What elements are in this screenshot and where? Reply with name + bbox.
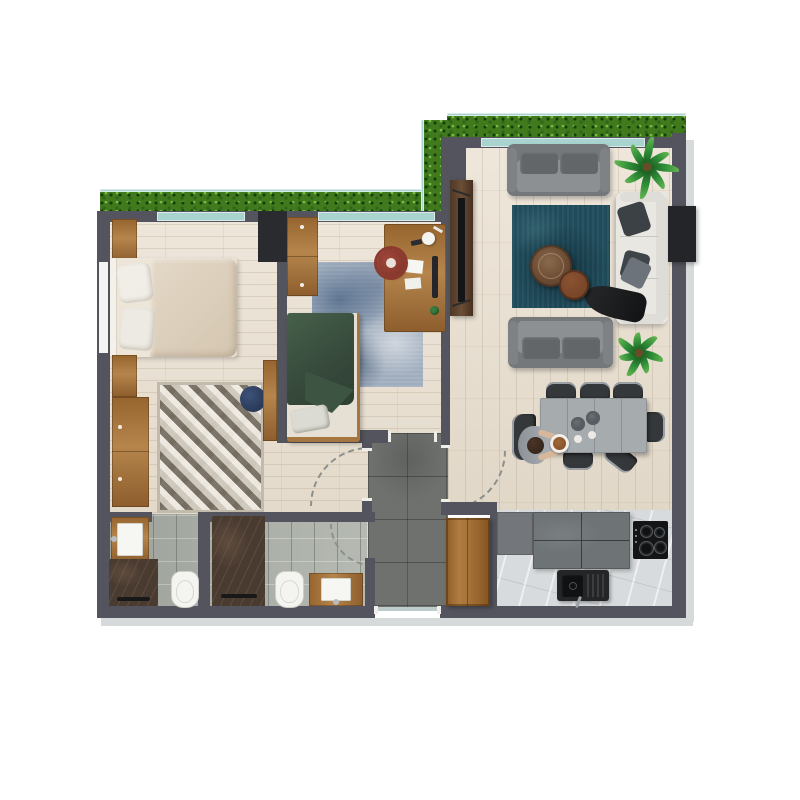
tv [458, 198, 465, 302]
entry-door-hinge-left [374, 606, 378, 614]
bathA-shower-drain [117, 597, 150, 601]
bathB-faucet [333, 599, 339, 605]
hedge-left-wing [100, 192, 447, 212]
desk [384, 224, 446, 332]
bathA-shower [109, 559, 158, 606]
desk-lamp [422, 232, 435, 245]
wall-bathB-right-top [365, 512, 375, 522]
desk-lamp-arm [433, 226, 443, 234]
sofa-gray-bottom [508, 317, 613, 368]
kitchen-counter [533, 512, 630, 569]
bathA-toilet [171, 571, 199, 608]
desk-paper-1 [405, 259, 423, 274]
entry-door-hinge-right [437, 606, 441, 614]
wall-bottom-left [97, 606, 375, 618]
bed-pillow-2 [118, 307, 156, 352]
bed-green-pillow [289, 404, 331, 434]
hall-door-post-bottom [362, 498, 372, 501]
bedroom2-door-post-left [388, 431, 391, 442]
wall-bottom-right [440, 606, 686, 618]
sink-drain-hole [569, 582, 577, 590]
closet-strip [263, 360, 277, 441]
small-plate-1 [574, 435, 582, 443]
bed-single-green [287, 313, 360, 442]
floor-plan [0, 0, 800, 800]
nightstand-bottom [112, 355, 137, 397]
living-door-post-bottom [441, 499, 450, 502]
bathA-faucet [111, 536, 117, 542]
desk-phone [411, 239, 423, 246]
bowl-2 [586, 411, 600, 425]
sink-drainboard [587, 574, 605, 597]
sofa-pillow-dark-1 [616, 200, 652, 237]
hall-door-post-top [362, 448, 372, 451]
kitchen-cabinet [497, 512, 533, 555]
induction-cooktop [633, 521, 668, 559]
desk-paper-2 [405, 277, 422, 289]
bed-double [110, 258, 237, 357]
dining-chair-4 [563, 452, 593, 470]
sofa-white [616, 192, 668, 324]
seated-person [516, 424, 562, 466]
bathB-toilet [275, 571, 304, 608]
bathA-washbasin-cabinet [111, 517, 149, 562]
shadow-bottom [101, 618, 693, 626]
kitchen-sink [557, 570, 609, 601]
dining-chair-right [645, 412, 665, 442]
floor-entry-hall [368, 433, 448, 608]
sofa-gray-top [507, 144, 610, 196]
wall-bath-divider [198, 512, 210, 608]
entry-door [377, 607, 438, 611]
window-bedroom2 [318, 212, 435, 221]
wardrobe-bedroom1 [112, 397, 149, 507]
window-bedroom1 [157, 212, 245, 221]
bathB-shower [212, 516, 265, 606]
kitchen-door-leaf [446, 518, 490, 606]
shaft-column [258, 211, 287, 262]
nightstand-top [112, 219, 137, 262]
monitor [432, 256, 438, 298]
desk-chair-red [377, 249, 405, 277]
person-head [527, 437, 544, 454]
bedroom2-door-post-right [434, 431, 437, 442]
coffee-table-small [559, 270, 589, 300]
bed-duvet [150, 258, 237, 357]
window-bedroom1-side [99, 262, 108, 353]
wall-bathB-right-bottom [365, 558, 375, 608]
living-door-post-top [441, 445, 450, 448]
desk-plant [430, 306, 439, 315]
small-plate-2 [588, 431, 596, 439]
food [553, 437, 566, 450]
wardrobe-bedroom2 [287, 217, 318, 296]
wall-kitchen-left [490, 510, 497, 608]
bathB-washbasin-cabinet [309, 573, 363, 606]
wall-living-west-stub [441, 502, 497, 515]
wall-step-corner [441, 137, 466, 185]
tv-console [450, 180, 473, 316]
bed-pillow-1 [116, 262, 154, 304]
black-wall-unit [668, 206, 696, 262]
bowl-1 [571, 417, 585, 431]
hedge-right-wing [447, 116, 686, 137]
bathB-shower-drain [221, 594, 257, 598]
